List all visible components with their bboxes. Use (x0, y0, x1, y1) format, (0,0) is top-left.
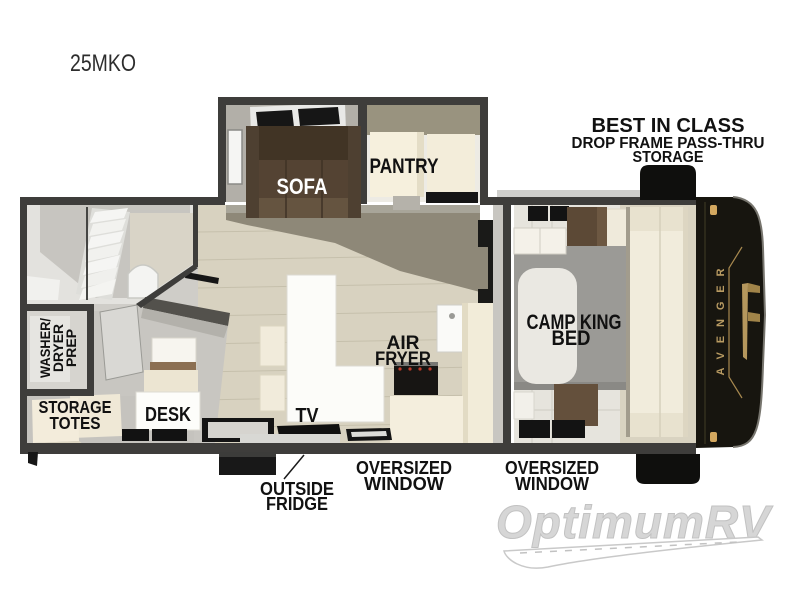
svg-text:SOFA: SOFA (277, 174, 328, 199)
svg-text:PREP: PREP (63, 329, 79, 367)
svg-text:FRIDGE: FRIDGE (266, 493, 328, 514)
svg-text:DESK: DESK (145, 404, 191, 426)
svg-text:WINDOW: WINDOW (515, 473, 589, 494)
svg-text:25MKO: 25MKO (70, 50, 136, 77)
svg-text:PANTRY: PANTRY (370, 155, 439, 178)
svg-text:TOTES: TOTES (50, 413, 101, 433)
svg-text:STORAGE: STORAGE (633, 149, 704, 166)
svg-text:WINDOW: WINDOW (364, 473, 445, 494)
svg-text:BED: BED (552, 327, 591, 350)
svg-text:TV: TV (296, 405, 320, 427)
svg-text:BEST IN CLASS: BEST IN CLASS (592, 114, 745, 137)
